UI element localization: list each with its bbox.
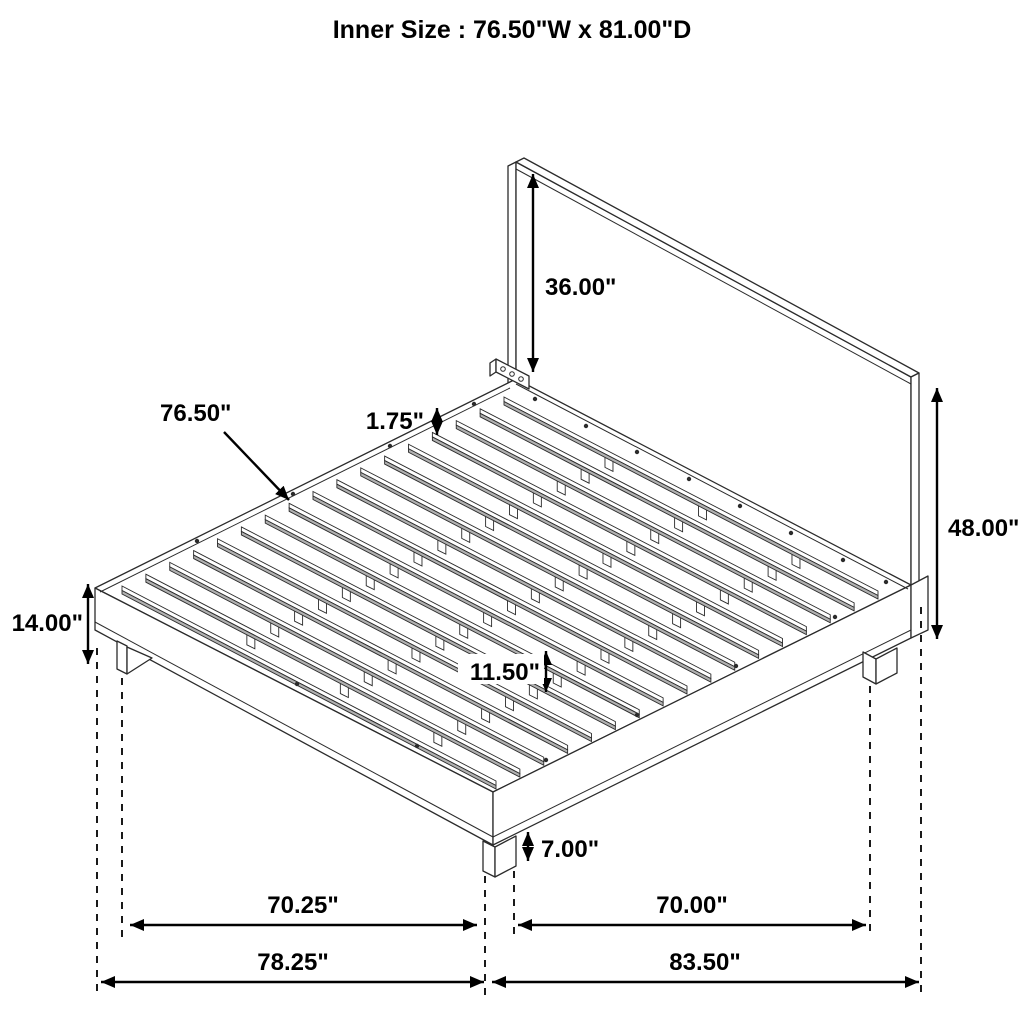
- bracket-hole: [501, 367, 506, 372]
- screw-dot: [415, 744, 419, 748]
- screw-dot: [884, 580, 888, 584]
- dim-front-leg-spacing-label: 70.25": [267, 892, 338, 919]
- bracket-hole: [510, 372, 515, 377]
- screw-dot: [833, 615, 837, 619]
- screw-dot: [789, 531, 793, 535]
- screw-dot: [687, 477, 691, 481]
- dim-slat-length-label: 76.50": [160, 400, 231, 427]
- left-leg-front-face: [117, 641, 127, 674]
- screw-dot: [388, 444, 392, 448]
- dim-slat-thickness-label: 1.75": [366, 408, 424, 435]
- dim-headboard-total-height-label: 48.00": [948, 515, 1019, 542]
- bracket-hole: [519, 377, 524, 382]
- isometric-bed-drawing: Inner Size : 76.50"W x 81.00"D: [0, 0, 1024, 1024]
- screw-dot: [195, 539, 199, 543]
- dim-overall-width-label: 78.25": [257, 949, 328, 976]
- front-leg-front-face: [483, 841, 495, 877]
- screw-dot: [635, 713, 639, 717]
- dim-side-leg-spacing-label: 70.00": [656, 892, 727, 919]
- screw-dot: [734, 664, 738, 668]
- screw-dot: [295, 682, 299, 686]
- dim-headboard-panel-height-label: 36.00": [545, 274, 616, 301]
- dim-leg-height-label: 7.00": [541, 836, 599, 863]
- screw-dot: [291, 492, 295, 496]
- head-rail-end-cap: [911, 576, 928, 638]
- dim-clearance-label: 11.50": [470, 659, 540, 686]
- diagram-title: Inner Size : 76.50"W x 81.00"D: [333, 16, 692, 44]
- screw-dot: [533, 397, 537, 401]
- screw-dot: [635, 450, 639, 454]
- dim-overall-depth-label: 83.50": [669, 949, 740, 976]
- dim-platform-height-label: 14.00": [12, 610, 83, 637]
- bracket-side: [490, 359, 496, 376]
- bed-dimension-diagram: Inner Size : 76.50"W x 81.00"D: [0, 0, 1024, 1024]
- headboard-left-edge: [508, 162, 516, 383]
- dim-slat-length-leader-arrow: [224, 432, 289, 500]
- headboard-right-edge: [911, 373, 919, 592]
- screw-dot: [472, 402, 476, 406]
- screw-dot: [738, 504, 742, 508]
- screw-dot: [544, 758, 548, 762]
- screw-dot: [841, 558, 845, 562]
- screw-dot: [584, 424, 588, 428]
